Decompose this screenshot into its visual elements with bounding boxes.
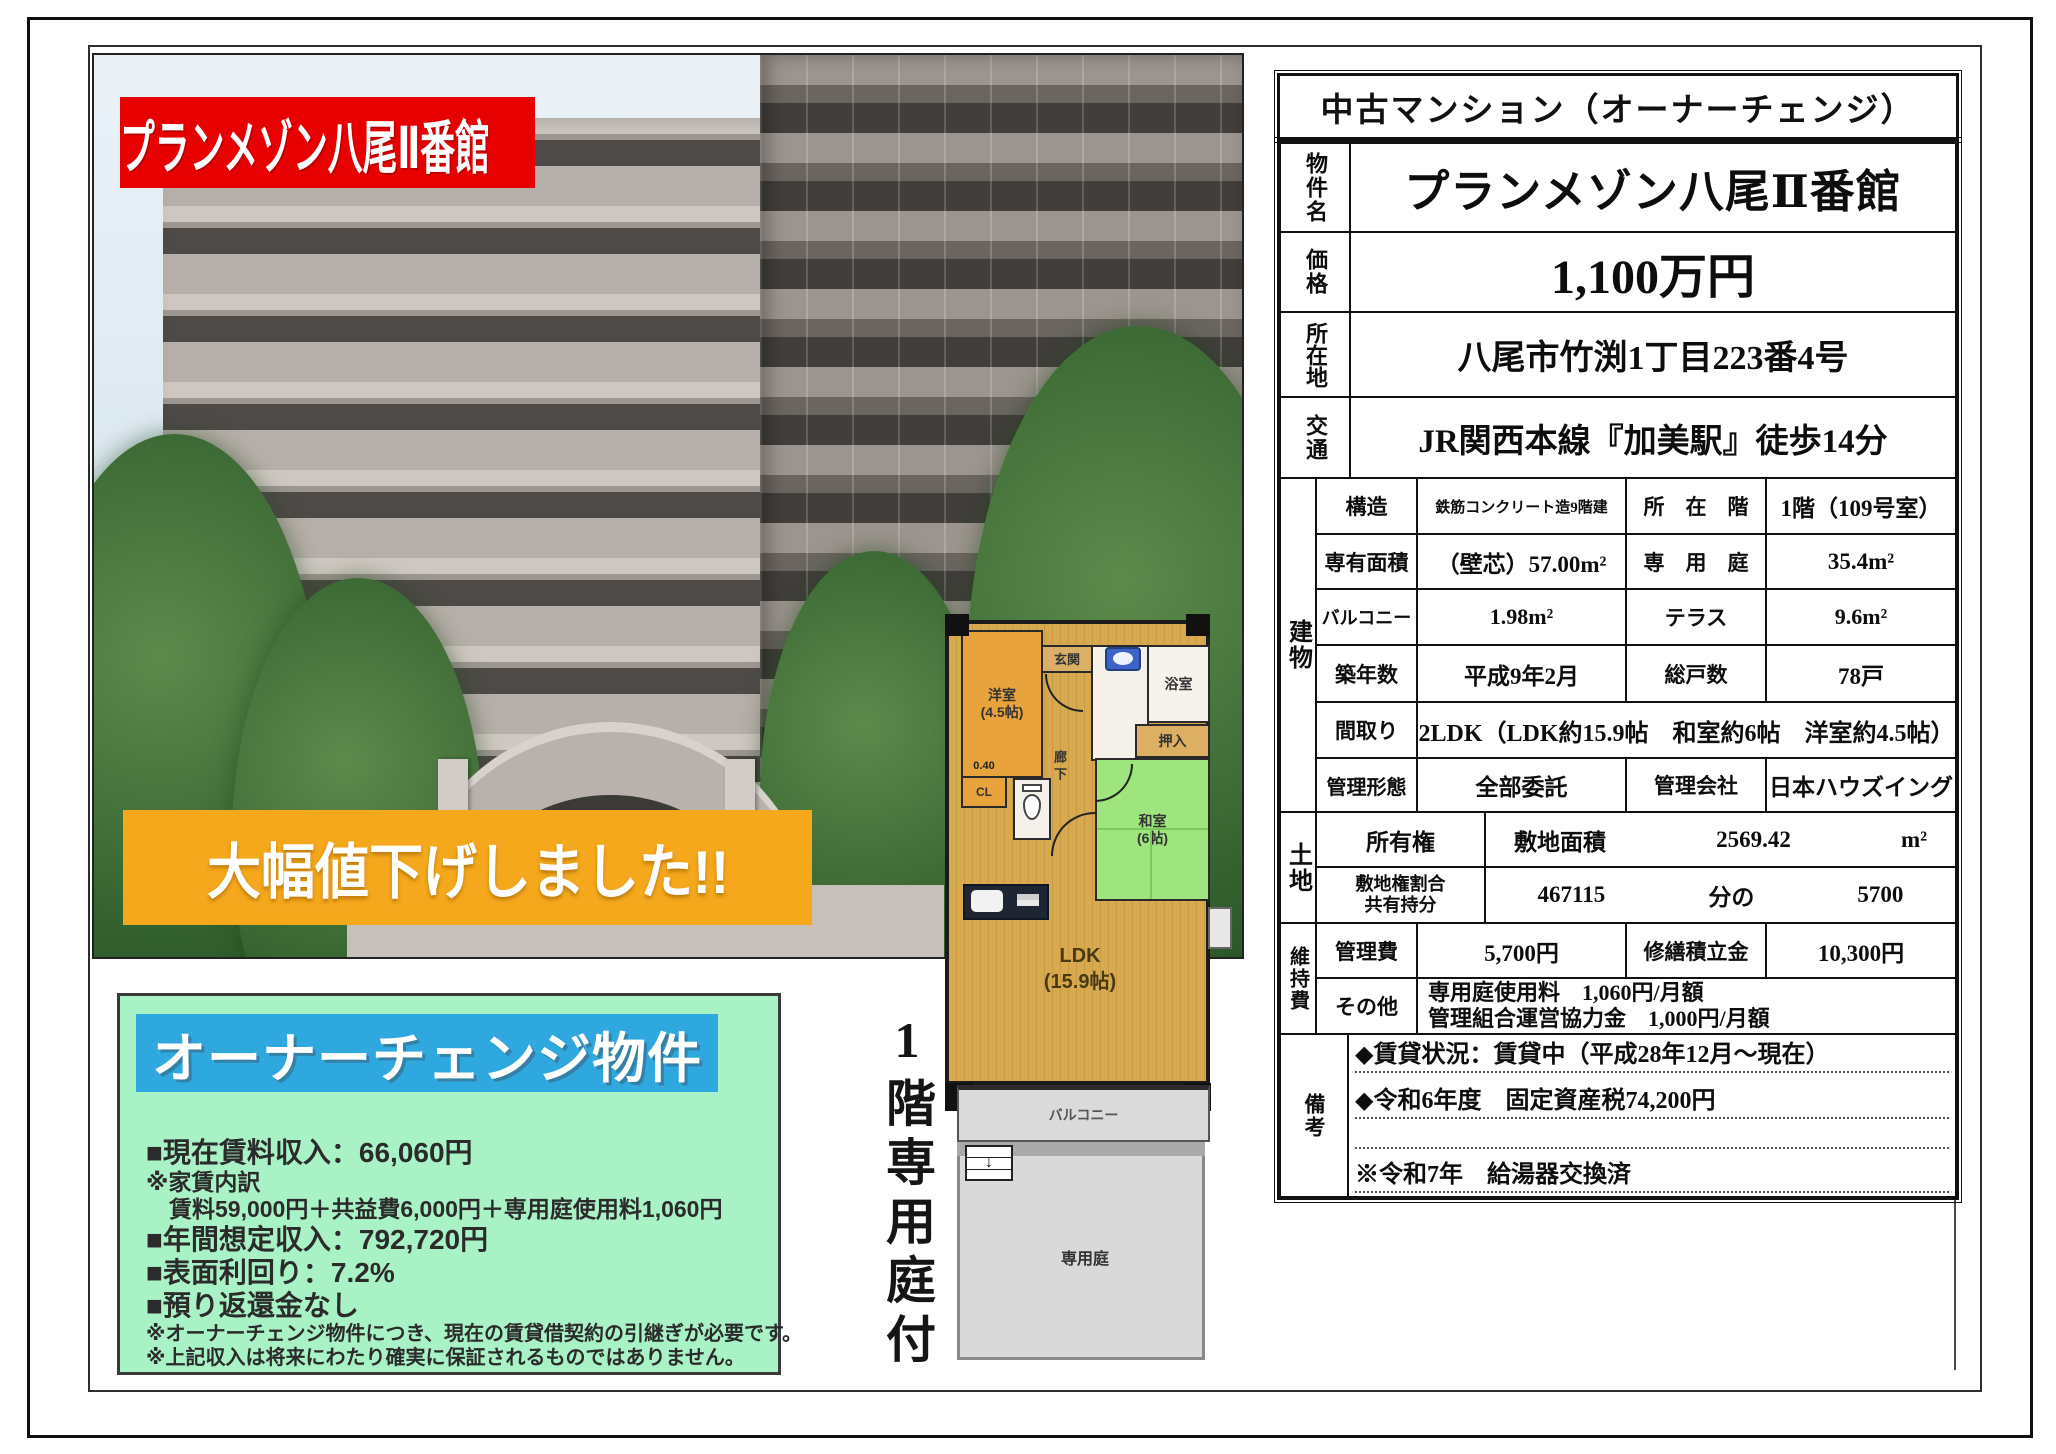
cell-label: 総戸数 bbox=[1626, 645, 1766, 702]
cell-label: 敷地権割合 共有持分 bbox=[1316, 867, 1485, 923]
spec-header: 中古マンション（オーナーチェンジ） bbox=[1277, 73, 1959, 140]
row-label: 物件名 bbox=[1280, 143, 1350, 232]
toilet-icon bbox=[1022, 784, 1042, 792]
row-label: 交通 bbox=[1280, 397, 1350, 478]
remarks-cell: ◆賃貸状況：賃貸中（平成28年12月～現在） ◆令和6年度 固定資産税74,20… bbox=[1348, 1034, 1956, 1197]
remark-line: ※令和7年 給湯器交換済 bbox=[1355, 1149, 1949, 1193]
cell-label: 構造 bbox=[1316, 478, 1417, 534]
cell-value: 専用庭使用料 1,060円/月額 管理組合運営協力金 1,000円/月額 bbox=[1417, 978, 1956, 1034]
table-row: 所有権 敷地面積 2569.42 m² bbox=[1316, 812, 1956, 867]
wall-post bbox=[1186, 614, 1210, 636]
floor-plan: 洋室 (4.5帖) 玄関 浴室 押入 和室 (6帖) 0.40 CL 廊下 LD… bbox=[945, 612, 1235, 1360]
owner-line: ■預り返還金なし bbox=[146, 1289, 758, 1322]
cell-label: 所有権 bbox=[1316, 812, 1485, 867]
cell-value: 全部委託 bbox=[1417, 758, 1626, 812]
table-row: バルコニー 1.98m² テラス 9.6m² bbox=[1316, 589, 1956, 645]
price-drop-banner-text: 大幅値下げしました!! bbox=[207, 824, 729, 911]
price-drop-banner: 大幅値下げしました!! bbox=[123, 810, 812, 925]
section-label-land: 土地 bbox=[1280, 812, 1316, 923]
cell-label: 修繕積立金 bbox=[1626, 923, 1766, 978]
tatami-line bbox=[1097, 828, 1208, 830]
cell-value: 鉄筋コンクリート造9階建 bbox=[1417, 478, 1626, 534]
share-denominator: 5700 bbox=[1857, 882, 1903, 908]
cell-label: 管理費 bbox=[1316, 923, 1417, 978]
row-label: 価格 bbox=[1280, 232, 1350, 312]
room-closet-oshiire: 押入 bbox=[1135, 724, 1210, 758]
cell-value: 2LDK（LDK約15.9帖 和室約6帖 洋室約4.5帖） bbox=[1417, 702, 1956, 758]
cell-label: 専有面積 bbox=[1316, 534, 1417, 589]
remark-line: ◆賃貸状況：賃貸中（平成28年12月～現在） bbox=[1355, 1035, 1949, 1073]
owner-change-box: オーナーチェンジ物件 ■現在賃料収入：66,060円 ※家賃内訳 賃料59,00… bbox=[117, 993, 781, 1375]
room-bath: 浴室 bbox=[1147, 645, 1210, 723]
property-title-banner-text: プランメゾン八尾Ⅱ番館 bbox=[120, 101, 490, 185]
kitchen-burner-icon bbox=[1015, 892, 1041, 908]
table-row: 価格 1,100万円 bbox=[1280, 232, 1956, 312]
cell-label: 所 在 階 bbox=[1626, 478, 1766, 534]
table-row: その他 専用庭使用料 1,060円/月額 管理組合運営協力金 1,000円/月額 bbox=[1316, 978, 1956, 1034]
share-divider-label: 分の bbox=[1708, 878, 1754, 912]
cell-label: 間取り bbox=[1316, 702, 1417, 758]
table-row: 物件名 プランメゾン八尾Ⅱ番館 bbox=[1280, 143, 1956, 232]
balcony-area: バルコニー bbox=[957, 1085, 1210, 1142]
outdoor-unit bbox=[1208, 907, 1232, 949]
owner-line: ※オーナーチェンジ物件につき、現在の賃貸借契約の引継ぎが必要です。 bbox=[146, 1322, 758, 1346]
table-row: 築年数 平成9年2月 総戸数 78戸 bbox=[1316, 645, 1956, 702]
table-row: 所在地 八尾市竹渕1丁目223番4号 bbox=[1280, 312, 1956, 397]
room-western: 洋室 (4.5帖) bbox=[961, 630, 1043, 778]
cell-value: 平成9年2月 bbox=[1417, 645, 1626, 702]
owner-change-lines: ■現在賃料収入：66,060円 ※家賃内訳 賃料59,000円＋共益費6,000… bbox=[146, 1136, 758, 1370]
tatami-line bbox=[1150, 830, 1152, 899]
section-label-building: 建物 bbox=[1280, 478, 1316, 812]
cell-value: （壁芯）57.00m² bbox=[1417, 534, 1626, 589]
table-row: 備考 ◆賃貸状況：賃貸中（平成28年12月～現在） ◆令和6年度 固定資産税74… bbox=[1280, 1034, 1956, 1197]
section-label-remarks: 備考 bbox=[1280, 1034, 1348, 1197]
dimension-label: 0.40 bbox=[959, 760, 1009, 774]
room-entrance: 玄関 bbox=[1041, 645, 1093, 673]
section-label-maintenance: 維持費 bbox=[1280, 923, 1316, 1034]
owner-line: 賃料59,000円＋共益費6,000円＋専用庭使用料1,060円 bbox=[146, 1196, 758, 1223]
kitchen-sink-icon bbox=[971, 890, 1003, 912]
owner-line: ※家賃内訳 bbox=[146, 1169, 758, 1196]
land-area-value: 2569.42 bbox=[1716, 827, 1791, 853]
owner-change-title: オーナーチェンジ物件 bbox=[136, 1014, 718, 1092]
cell-value: 1.98m² bbox=[1417, 589, 1626, 645]
cell-label: テラス bbox=[1626, 589, 1766, 645]
table-row: 専有面積 （壁芯）57.00m² 専 用 庭 35.4m² bbox=[1316, 534, 1956, 589]
cell-value: 5,700円 bbox=[1417, 923, 1626, 978]
cell-value: 78戸 bbox=[1766, 645, 1956, 702]
owner-line: ※上記収入は将来にわたり確実に保証されるものではありません。 bbox=[146, 1346, 758, 1370]
table-row: 敷地権割合 共有持分 467115 分の 5700 bbox=[1316, 867, 1956, 923]
cell-label: 築年数 bbox=[1316, 645, 1417, 702]
remark-line bbox=[1355, 1119, 1949, 1149]
share-numerator: 467115 bbox=[1538, 882, 1606, 908]
property-address: 八尾市竹渕1丁目223番4号 bbox=[1350, 312, 1956, 397]
land-area-label: 敷地面積 bbox=[1514, 823, 1606, 857]
land-area-unit: m² bbox=[1901, 827, 1927, 853]
wall-post bbox=[945, 614, 969, 636]
owner-line: ■現在賃料収入：66,060円 bbox=[146, 1136, 758, 1169]
cell-label: 管理会社 bbox=[1626, 758, 1766, 812]
property-access: JR関西本線『加美駅』徒歩14分 bbox=[1350, 397, 1956, 478]
cell-value: 日本ハウズイング bbox=[1766, 758, 1956, 812]
cell-value: 9.6m² bbox=[1766, 589, 1956, 645]
table-row: 管理形態 全部委託 管理会社 日本ハウズイング bbox=[1316, 758, 1956, 812]
property-title-banner: プランメゾン八尾Ⅱ番館 bbox=[120, 97, 535, 188]
cell-value: 敷地面積 2569.42 m² bbox=[1485, 812, 1956, 867]
property-price: 1,100万円 bbox=[1350, 232, 1956, 312]
room-ldk-label: LDK (15.9帖) bbox=[985, 942, 1175, 996]
table-row: 交通 JR関西本線『加美駅』徒歩14分 bbox=[1280, 397, 1956, 478]
cell-value: 35.4m² bbox=[1766, 534, 1956, 589]
cell-label: バルコニー bbox=[1316, 589, 1417, 645]
owner-line: ■表面利回り：7.2% bbox=[146, 1256, 758, 1289]
table-row: 構造 鉄筋コンクリート造9階建 所 在 階 1階（109号室） bbox=[1316, 478, 1956, 534]
cell-value: 1階（109号室） bbox=[1766, 478, 1956, 534]
first-floor-garden-caption: 1階専用庭付 bbox=[876, 1012, 938, 1378]
owner-line: ■年間想定収入：792,720円 bbox=[146, 1223, 758, 1256]
cell-value: 467115 分の 5700 bbox=[1485, 867, 1956, 923]
cell-label: 専 用 庭 bbox=[1626, 534, 1766, 589]
cell-label: その他 bbox=[1316, 978, 1417, 1034]
property-name: プランメゾン八尾Ⅱ番館 bbox=[1350, 143, 1956, 232]
remark-line: ◆令和6年度 固定資産税74,200円 bbox=[1355, 1073, 1949, 1119]
private-garden-label: 専用庭 bbox=[1035, 1242, 1135, 1272]
cell-label: 管理形態 bbox=[1316, 758, 1417, 812]
washbasin-bowl-icon bbox=[1113, 652, 1133, 665]
row-label: 所在地 bbox=[1280, 312, 1350, 397]
cell-value: 10,300円 bbox=[1766, 923, 1956, 978]
table-row: 管理費 5,700円 修繕積立金 10,300円 bbox=[1316, 923, 1956, 978]
hallway-label: 廊下 bbox=[1051, 750, 1069, 814]
room-closet-cl: CL bbox=[961, 776, 1007, 808]
table-row: 間取り 2LDK（LDK約15.9帖 和室約6帖 洋室約4.5帖） bbox=[1316, 702, 1956, 758]
spec-table: 物件名 プランメゾン八尾Ⅱ番館 価格 1,100万円 所在地 八尾市竹渕1丁目2… bbox=[1277, 140, 1959, 1200]
stairs-icon: ↓ bbox=[965, 1145, 1013, 1181]
